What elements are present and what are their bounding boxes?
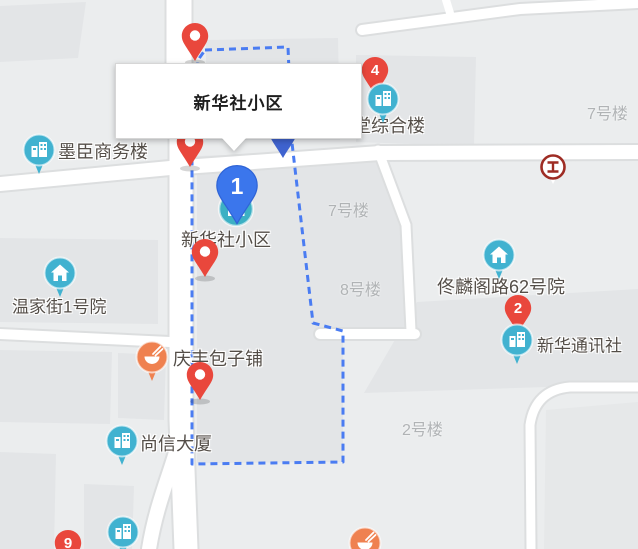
residence-house-icon[interactable]: [481, 237, 517, 283]
building-label-no7-east: 7号楼: [587, 100, 628, 124]
poi-label-mochen-office: 墨臣商务楼: [58, 138, 148, 164]
pin-number-label: 9: [64, 535, 72, 549]
poi-label-shangxin-tower: 尚信大厦: [140, 430, 212, 456]
red-map-pin[interactable]: [188, 236, 222, 282]
building-label-no2: 2号楼: [402, 416, 443, 440]
building-label-no8: 8号楼: [340, 276, 381, 300]
building-label-no7: 7号楼: [328, 197, 369, 221]
blue-numbered-pin-1[interactable]: 1: [211, 161, 263, 229]
map-canvas[interactable]: 墨臣商务楼 温家街1号院 尚信大厦 庆丰包子铺 新华社小区 堂综合楼 佟麟阁路6…: [0, 0, 638, 549]
pin-number-label: 1: [231, 173, 244, 199]
office-building-icon[interactable]: [365, 81, 401, 127]
red-map-pin[interactable]: [178, 20, 212, 66]
red-numbered-pin-9[interactable]: 9: [51, 527, 85, 549]
restaurant-bowl-icon[interactable]: [134, 339, 170, 385]
tooltip-title: 新华社小区: [194, 89, 284, 114]
residence-house-icon[interactable]: [42, 255, 78, 301]
search-result-tooltip[interactable]: 新华社小区: [115, 63, 362, 139]
office-building-icon[interactable]: [105, 514, 141, 549]
restaurant-bowl-icon[interactable]: [347, 525, 383, 549]
pin-number-label: 2: [514, 300, 522, 317]
icbc-bank-icon[interactable]: [538, 153, 568, 189]
poi-label-xinhua-news-agency: 新华通讯社: [537, 332, 622, 357]
office-building-icon[interactable]: [104, 423, 140, 469]
pin-number-label: 4: [371, 62, 380, 79]
office-building-icon[interactable]: [499, 322, 535, 368]
office-building-icon[interactable]: [21, 132, 57, 178]
red-map-pin[interactable]: [183, 359, 217, 405]
